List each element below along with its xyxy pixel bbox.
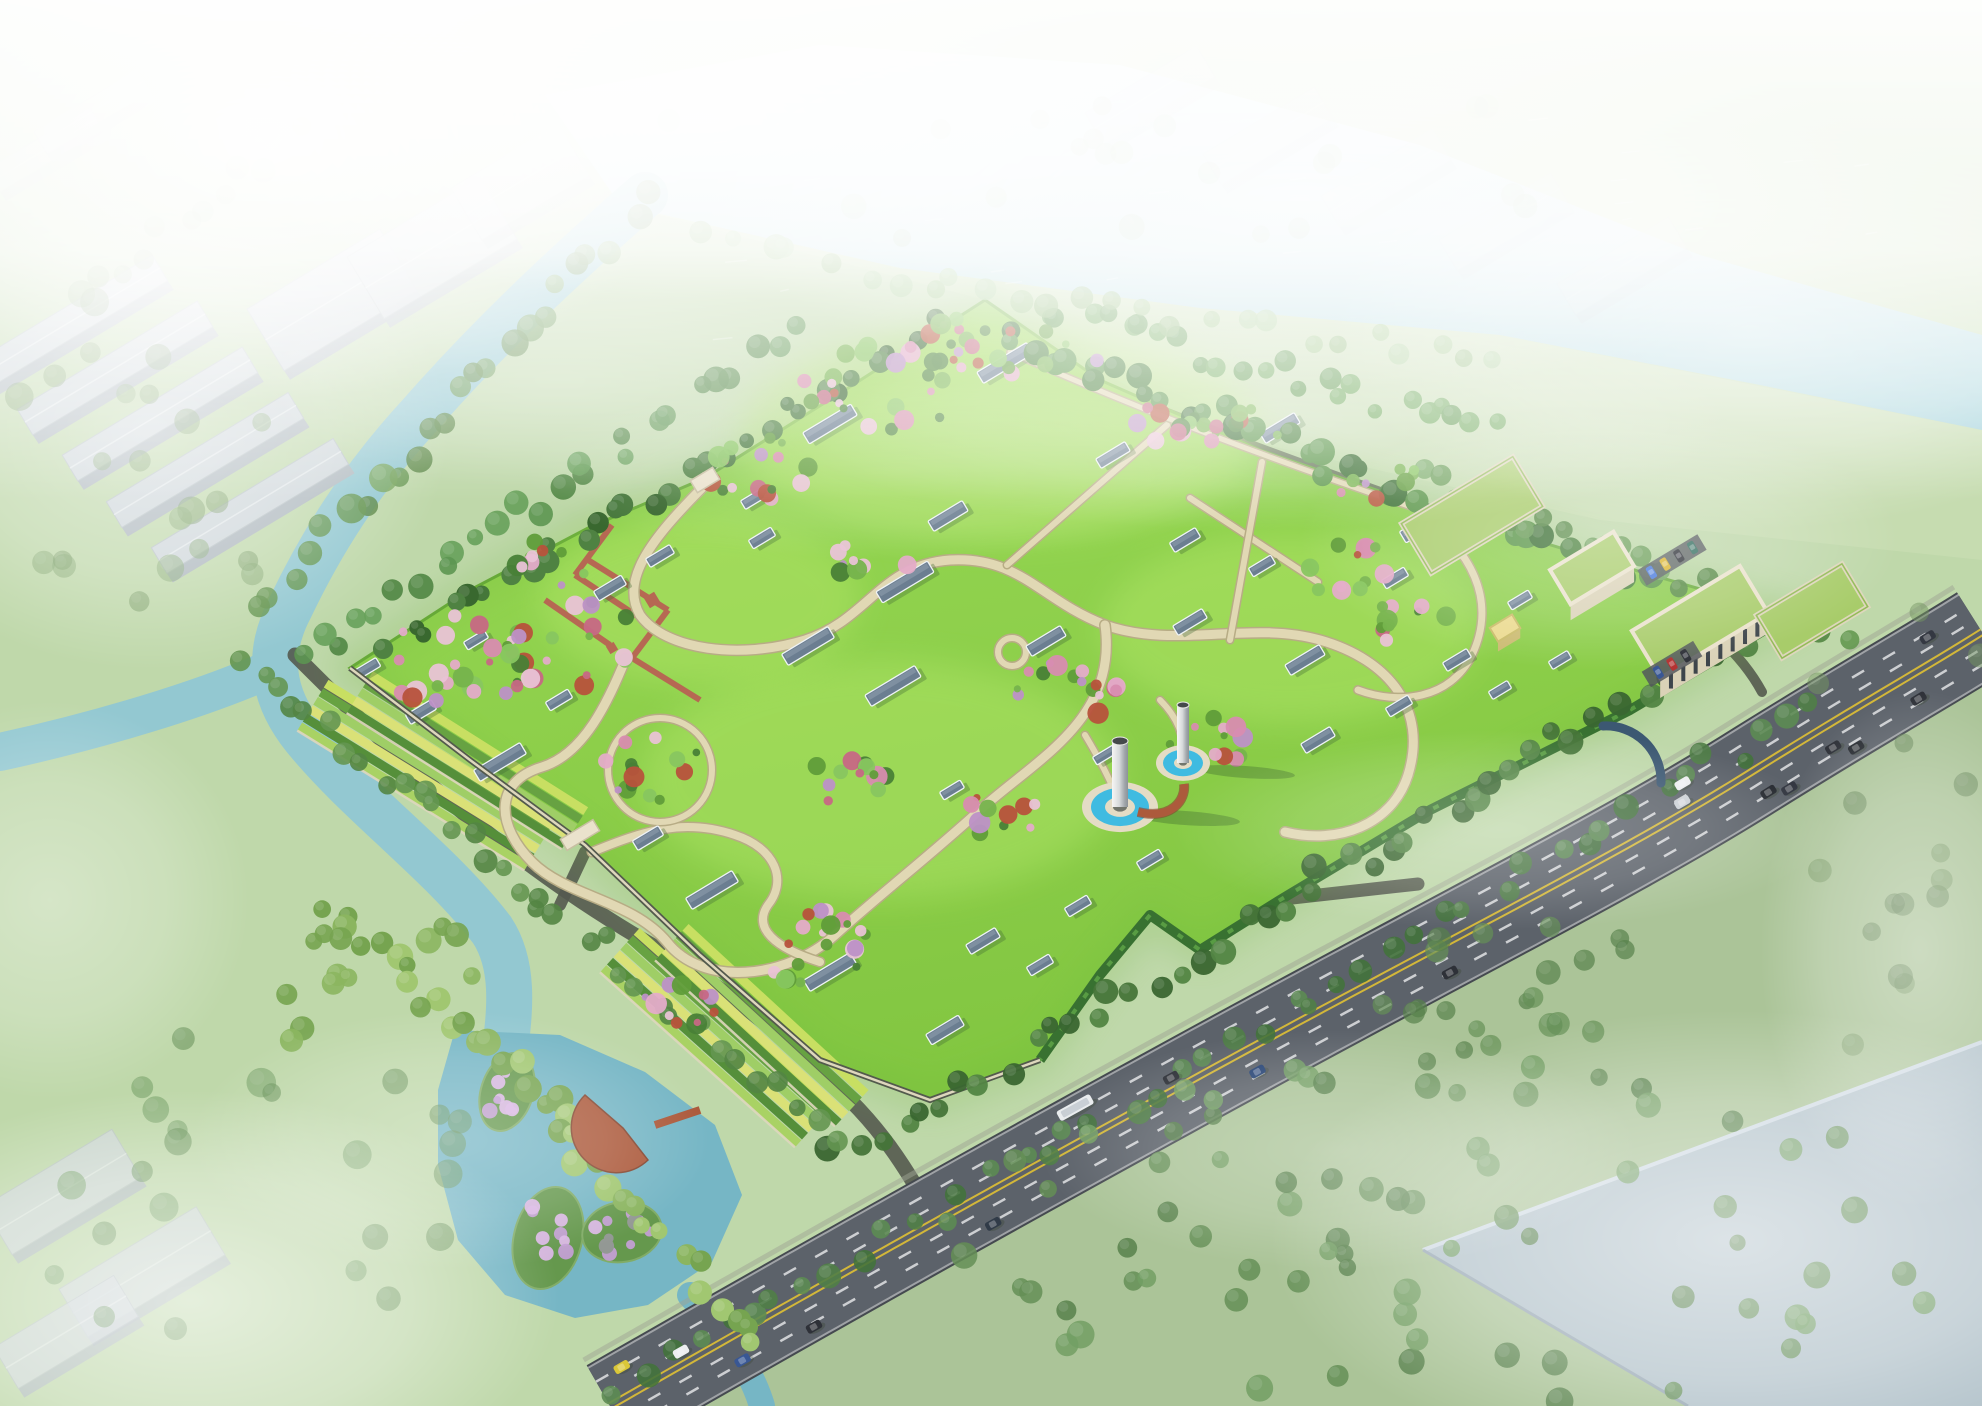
layer-fog-overlay [0,0,1982,1406]
fog-patch [1170,730,1830,930]
aerial-rendering [0,0,1982,1406]
fog-patch [1040,1030,1640,1270]
fog-top-band [0,0,1982,500]
rendering-viewport: Aerial rendering: riverside park built o… [0,0,1982,1406]
fog-patch [190,1010,710,1270]
